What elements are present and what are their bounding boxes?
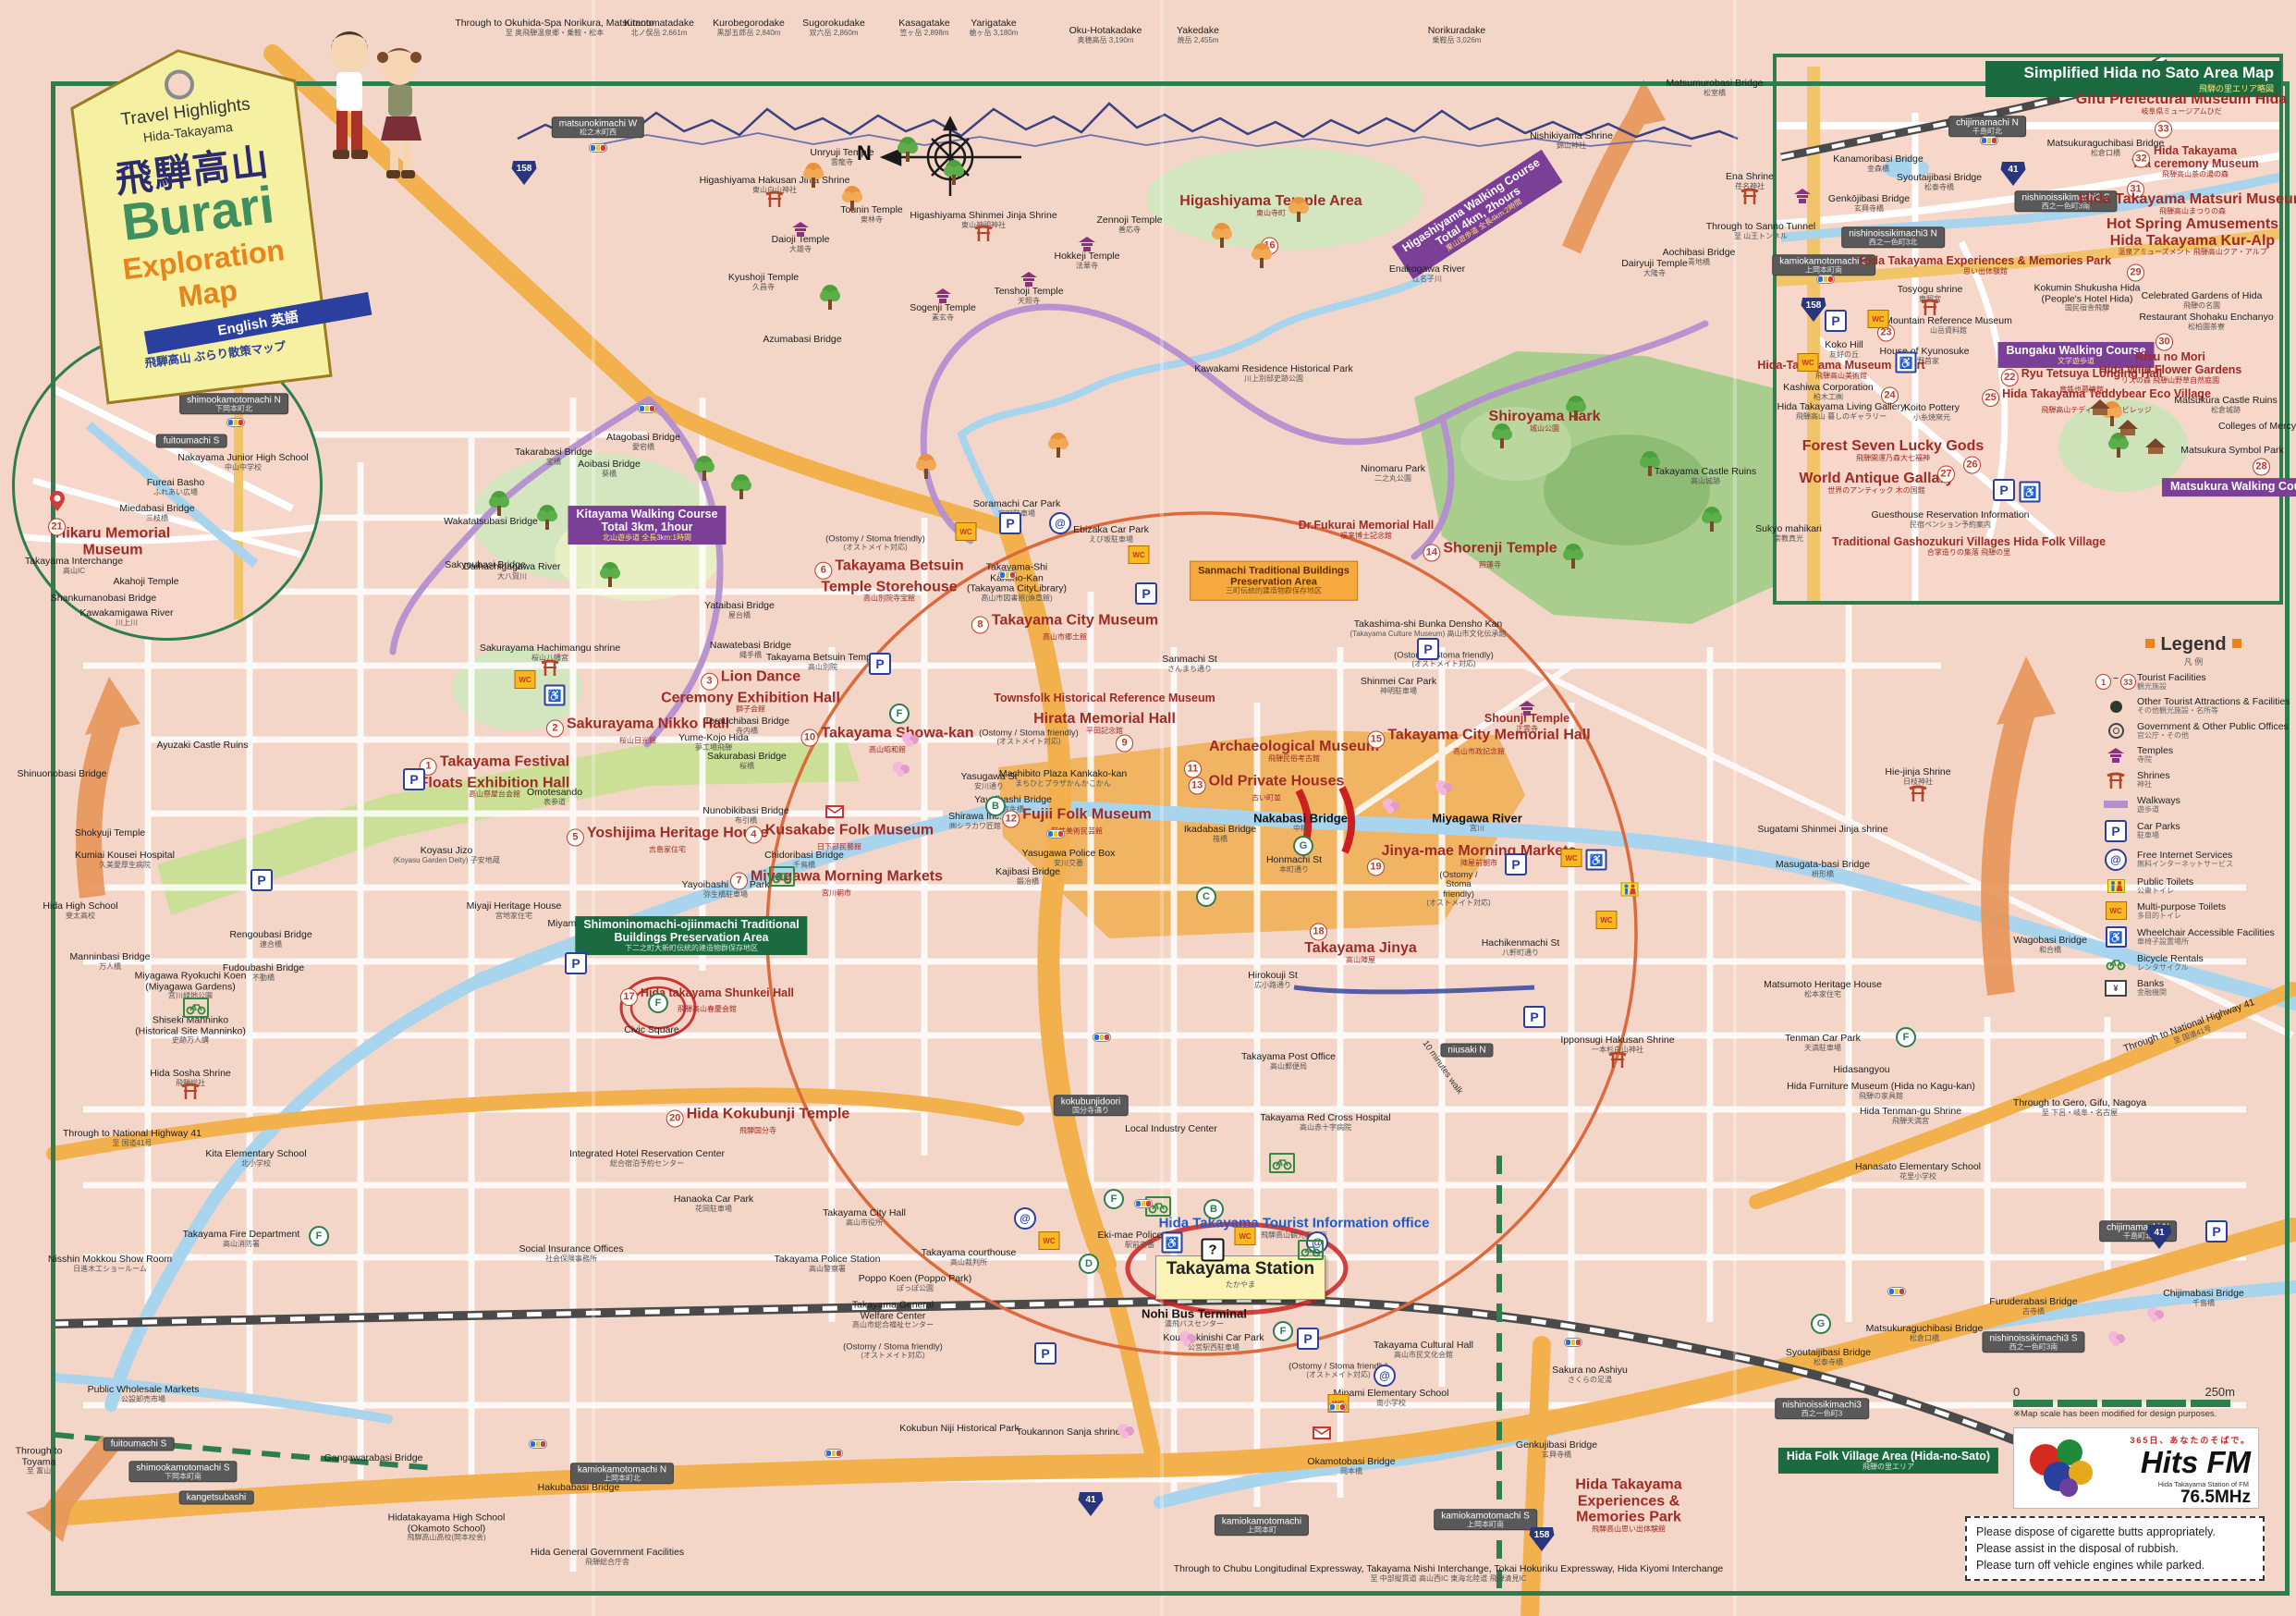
facility-number-marker: 30 xyxy=(2156,334,2176,351)
cherry-blossom-icon xyxy=(1434,778,1454,797)
map-label: Risu no MoriHida Wild Flower Gardensリスの森… xyxy=(2099,351,2242,385)
map-label: Hida General Government Facilities飛騨総合庁舎 xyxy=(531,1548,684,1566)
map-label: Hida Takayama Tourist Information office… xyxy=(1159,1217,1430,1240)
map-label: Takayama Post Office高山郵便局 xyxy=(1241,1052,1336,1071)
map-label: kokubunjidoori国分寺通り xyxy=(1055,1096,1128,1115)
map-label: Kurobegorodake黒部五郎岳 2,840m xyxy=(713,18,785,37)
information-icon: ? xyxy=(1202,1239,1225,1262)
autumn-tree-icon xyxy=(801,162,825,190)
map-label: Hida Tenman-gu Shrine飛騨天満宮 xyxy=(1860,1107,1961,1125)
facility-number: 4 xyxy=(745,826,763,843)
map-label: Shiseki Manninko(Historical Site Mannink… xyxy=(135,1015,246,1044)
map-label: Kokumin Shukusha Hida(People's Hotel Hid… xyxy=(2034,283,2141,312)
map-label: Yataibasi Bridge屋台橋 xyxy=(704,601,775,619)
map-label: Through to Gero, Gifu, Nagoya至 下呂・岐阜・名古屋 xyxy=(2013,1098,2146,1117)
map-label: Hakubabasi Bridge xyxy=(538,1483,620,1494)
traffic-signal-icon xyxy=(589,143,607,153)
map-label: Yakedake焼岳 2,455m xyxy=(1177,26,1219,44)
map-label: Sugatami Shinmei Jinja shrine xyxy=(1757,825,1887,836)
multi-toilet-icon: WC xyxy=(515,670,536,689)
facility-number: 19 xyxy=(1367,859,1385,876)
map-label: Townsfolk Historical Reference Museum xyxy=(994,692,1215,705)
bus-stop-letter-icon: F xyxy=(309,1226,329,1246)
gassho-hut-icon xyxy=(2143,436,2168,455)
facility-number: 18 xyxy=(1310,924,1327,941)
parking-icon: P xyxy=(1034,1342,1056,1365)
map-label: Sanmachi Traditional BuildingsPreservati… xyxy=(1190,561,1358,601)
map-label: Genkujibasi Bridge玄興寺橋 xyxy=(1516,1440,1597,1459)
title-tag: Travel Highlights Hida-Takayama 飛騨高山 Bur… xyxy=(65,35,333,404)
wheelchair-icon: ♿ xyxy=(2020,482,2041,503)
facility-number: 33 xyxy=(2155,121,2172,139)
tree-icon xyxy=(942,159,966,187)
map-label: Miyagawa River宮川 xyxy=(1432,813,1522,834)
traffic-signal-icon xyxy=(529,1439,547,1449)
tree-icon xyxy=(1638,450,1662,478)
traffic-signal-icon xyxy=(1046,829,1065,839)
shrine-icon xyxy=(1607,1050,1628,1069)
map-label: Archaeological Museum飛騨民俗考古館 xyxy=(1209,739,1379,763)
facility-number: 27 xyxy=(1937,466,1955,484)
map-label: Kajibasi Bridge鍛冶橋 xyxy=(995,867,1060,886)
facility-number: 26 xyxy=(1963,457,1981,474)
cherry-blossom-icon xyxy=(1178,1329,1198,1348)
map-label: Integrated Hotel Reservation Center総合宿泊予… xyxy=(569,1149,725,1168)
internet-icon: @ xyxy=(1374,1365,1396,1387)
tree-icon xyxy=(598,561,622,589)
facility-number: 7 xyxy=(730,872,748,889)
map-label: Shimoninomachi-ojiinmachi TraditionalBui… xyxy=(575,916,807,955)
facility-number-marker: 27 xyxy=(1937,466,1958,484)
autumn-tree-icon xyxy=(1210,222,1234,250)
traffic-signal-icon xyxy=(1093,1033,1111,1042)
facility-number: 10 xyxy=(800,728,818,746)
parking-icon: P xyxy=(1825,310,1847,332)
facility-number: 3 xyxy=(701,672,718,690)
map-label: Takashima-shi Bunka Densho Kan(Takayama … xyxy=(1350,619,1507,638)
map-label: Wakatatsubasi Bridge xyxy=(444,517,538,528)
parking-icon: P xyxy=(1993,479,2015,501)
map-label: Hida TakayamaExperiences &Memories Park飛… xyxy=(1575,1476,1681,1533)
map-label: Yarigatake槍ヶ岳 3,180m xyxy=(970,18,1019,37)
traffic-signal-icon xyxy=(824,1449,843,1458)
parking-icon: P xyxy=(1523,1006,1545,1028)
tree-icon xyxy=(1561,543,1585,570)
map-label: Sanmachi Stさんまち通り xyxy=(1162,655,1217,673)
map-label: Kanamoribasi Bridge金森橋 xyxy=(1833,154,1923,173)
map-label: Hanaoka Car Park花岡駐車場 xyxy=(674,1194,753,1213)
map-label: Matsukura Symbol Park xyxy=(2180,446,2283,457)
map-label: matsunokimachi W松之木町西 xyxy=(553,117,643,137)
multi-toilet-icon: WC xyxy=(956,522,977,541)
map-label: Shinuonobasi Bridge xyxy=(18,769,107,780)
facility-number: 14 xyxy=(1423,544,1440,561)
tree-icon xyxy=(1700,506,1724,533)
map-label: kamiokamotomachi上岡本町 xyxy=(1215,1515,1308,1535)
map-label: Hikaru MemorialMuseum xyxy=(55,525,170,557)
map-pin-icon xyxy=(49,490,66,512)
map-label: Tenshoji Temple天照寺 xyxy=(994,287,1063,305)
tree-icon xyxy=(1564,395,1588,422)
map-label: Sugorokudake双六岳 2,860m xyxy=(802,18,865,37)
post-office-icon xyxy=(825,805,844,818)
facility-number-marker: 9 xyxy=(1116,735,1136,753)
bicycle-rental-icon xyxy=(183,998,209,1018)
map-label: Oku-Hotakadake奥穂高岳 3,190m xyxy=(1069,26,1142,44)
parking-icon: P xyxy=(1505,853,1527,875)
map-label: 20Hida Kokubunji Temple飛騨国分寺 xyxy=(666,1107,850,1135)
map-label: Masugata-basi Bridge枡形橋 xyxy=(1776,860,1870,878)
cherry-blossom-icon xyxy=(1381,797,1401,815)
map-label: Takayama-ShiKansho-Kan(Takayama CityLibr… xyxy=(967,562,1067,602)
map-label: nishinoissikimachi3西之一色町3 xyxy=(1776,1399,1868,1418)
tree-icon xyxy=(896,136,920,164)
label-layer: Through to Okuhida-Spa Norikura, Matsumo… xyxy=(0,0,2296,1616)
facility-number: 32 xyxy=(2132,151,2150,168)
bus-stop-letter-icon: G xyxy=(1811,1314,1831,1334)
map-label: Nakayama Junior High School中山中学校 xyxy=(177,453,308,471)
bus-stop-letter-icon: F xyxy=(648,993,668,1013)
map-label: Kumiai Kousei Hospital久美愛厚生病院 xyxy=(75,851,175,869)
map-label: Hida Furniture Museum (Hida no Kagu-kan)… xyxy=(1787,1082,1975,1100)
tree-icon xyxy=(729,473,753,501)
map-label: Takayama Castle Ruins高山城跡 xyxy=(1655,467,1756,485)
public-toilet-icon xyxy=(1621,883,1639,897)
map-label: Takayama Cultural Hall高山市民文化会館 xyxy=(1374,1341,1473,1359)
facility-number-marker: 33 xyxy=(2155,121,2175,139)
facility-number: 13 xyxy=(1189,777,1206,794)
map-label: Nishikiyama Shrine錦山神社 xyxy=(1530,131,1613,150)
parking-icon: P xyxy=(999,512,1021,534)
bus-stop-letter-icon: F xyxy=(1896,1027,1916,1047)
map-label: Chijimabasi Bridge千島橋 xyxy=(2163,1289,2244,1307)
bicycle-rental-icon xyxy=(1269,1153,1295,1173)
map-label: Enakogawa River江名子川 xyxy=(1389,264,1465,283)
wheelchair-icon: ♿ xyxy=(1896,352,1917,373)
map-label: Honmachi St本町通り xyxy=(1266,855,1322,874)
parking-icon: P xyxy=(250,869,273,891)
tree-icon xyxy=(692,455,716,483)
map-label: Public Wholesale Markets公設卸売市場 xyxy=(88,1385,200,1403)
map-label: niusaki N xyxy=(1441,1045,1492,1057)
route-shield-icon: 158 xyxy=(1801,298,1826,322)
map-label: Norikuradake乗鞍岳 3,026m xyxy=(1428,26,1485,44)
map-label: Miyaji Heritage House宮地家住宅 xyxy=(467,901,562,920)
map-label: Machibito Plaza Kankako-kanまちひとプラザかんかこかん xyxy=(999,769,1127,788)
map-label: Civic Square xyxy=(624,1025,679,1036)
shrine-icon xyxy=(180,1082,201,1100)
wheelchair-icon: ♿ xyxy=(544,685,566,706)
map-label: Takayama Fire Department高山消防署 xyxy=(183,1230,300,1248)
map-label: Through to National Highway 41至 国道41号 xyxy=(63,1129,202,1147)
temple-icon xyxy=(1078,236,1096,252)
map-label: Hanasato Elementary School花里小学校 xyxy=(1855,1162,1981,1181)
map-label: Toukannon Sanja shrine xyxy=(1017,1427,1121,1438)
map-label: 5Yoshijima Heritage House吉島家住宅 xyxy=(567,826,768,854)
map-label: fuitoumachi S xyxy=(157,435,226,447)
facility-number-marker: 21 xyxy=(48,519,68,536)
map-label: Hie-jinja Shrine日枝神社 xyxy=(1885,767,1950,786)
facility-number-marker: 26 xyxy=(1963,457,1984,474)
map-label: Ebizaka Car Parkえび坂駐車場 xyxy=(1073,525,1149,544)
cherry-blossom-icon xyxy=(891,760,911,778)
parking-icon: P xyxy=(403,768,425,790)
map-label: Manninbasi Bridge万人橋 xyxy=(70,952,151,971)
temple-icon xyxy=(1020,271,1038,288)
map-label: (Ostomy / Stoma friendly)(オストメイト対応) xyxy=(843,1343,943,1361)
map-label: Hida Folk Village Area (Hida-no-Sato)飛騨の… xyxy=(1778,1448,1998,1474)
traffic-signal-icon xyxy=(1328,1402,1347,1412)
cherry-blossom-icon xyxy=(900,730,921,749)
map-label: Shokyuji Temple xyxy=(75,828,145,839)
bus-stop-letter-icon: F xyxy=(1273,1321,1293,1341)
map-label: 12Fujii Folk Museum藤井美術民芸館 xyxy=(1002,807,1152,836)
map-label: (Ostomy / Stoma friendly)(オストメイト対応) xyxy=(1394,652,1494,669)
map-label: Through to Sanno Tunnel至 山王トンネル xyxy=(1706,222,1816,240)
map-label: shimookamotomachi N下岡本町北 xyxy=(180,394,287,413)
route-shield-icon: 158 xyxy=(1530,1527,1555,1551)
bicycle-rental-icon xyxy=(1298,1240,1324,1260)
map-label: Guesthouse Reservation Information民宿ペンショ… xyxy=(1871,510,2029,529)
shrine-icon xyxy=(764,190,785,208)
map-label: 4Kusakabe Folk Museum日下部民藝館 xyxy=(745,823,934,851)
map-label: Social Insurance Offices社会保険事務所 xyxy=(519,1244,623,1263)
map-label: Mountain Reference Museum山岳資料館 xyxy=(1885,316,2012,335)
map-label: Hot Spring AmusementsHida Takayama Kur-A… xyxy=(2107,216,2278,257)
map-label: Takayama courthouse高山裁判所 xyxy=(922,1248,1017,1267)
map-label: Sakura no Ashiyuさくらの足湯 xyxy=(1552,1365,1628,1384)
map-label: kamiokamotomachi S上岡本町南 xyxy=(1435,1510,1536,1529)
map-label: Gifu Prefectural Museum Hida岐阜県ミュージアムひだ xyxy=(2076,92,2288,116)
map-label: Poppo Koen (Poppo Park)ぽっぽ公園 xyxy=(859,1274,972,1292)
map-label: shimookamotomachi S下岡本町南 xyxy=(129,1462,236,1481)
map-label: Yume-Kojo Hida夢工場飛騨 xyxy=(678,733,749,752)
map-label: Higashiyama Walking CourseTotal 4km, 2ho… xyxy=(1392,150,1562,279)
map-label: Koito Pottery小糸焼窯元 xyxy=(1904,403,1960,422)
map-label: Akahoji Temple xyxy=(113,577,178,588)
map-label: 8Takayama City Museum高山市郷土館 xyxy=(971,613,1158,642)
map-label: Ninomaru Park二之丸公園 xyxy=(1361,464,1425,483)
map-label: Hirokouji St広小路通り xyxy=(1248,971,1298,989)
map-label: Hachikenmachi St八軒町通り xyxy=(1482,938,1560,957)
map-label: Takayama Interchange高山IC xyxy=(25,557,123,575)
map-label: 14Shorenji Temple照蓮寺 xyxy=(1423,541,1557,569)
map-label: Sukyo mahikari崇教真光 xyxy=(1755,524,1822,543)
map-label: Gangawarabasi Bridge xyxy=(324,1453,423,1464)
map-label: Through to Chubu Longitudinal Expressway… xyxy=(1174,1564,1724,1583)
map-label: Wagobasi Bridge和合橋 xyxy=(2013,936,2087,954)
map-label: Yasugawa St安川通り xyxy=(960,772,1017,790)
bus-stop-letter-icon: D xyxy=(1079,1254,1099,1274)
temple-icon xyxy=(1793,188,1812,204)
map-label: Koyasu Jizo(Koyasu Garden Deity) 子安地蔵 xyxy=(393,846,500,864)
multi-toilet-icon: WC xyxy=(1039,1231,1060,1250)
map-label: (Ostomy / Stoma friendly)(オストメイト対応) xyxy=(979,729,1079,747)
internet-icon: @ xyxy=(1014,1207,1036,1230)
map-label: Colleges of Mercy xyxy=(2218,422,2296,433)
map-label: kamiokamotomachi N上岡本町北 xyxy=(571,1463,673,1483)
map-label: Takayama Jinya高山陣屋 xyxy=(1304,940,1417,964)
facility-number: 5 xyxy=(567,828,584,846)
bus-stop-letter-icon: G xyxy=(1293,836,1313,856)
map-label: Takayama Police Station高山警察署 xyxy=(775,1255,881,1273)
map-label: Hidatakayama High School(Okamoto School)… xyxy=(388,1512,506,1541)
map-label: Aoibasi Bridge葵橋 xyxy=(578,459,641,478)
map-label: Shinmei Car Park神明駐車場 xyxy=(1361,677,1436,695)
parking-icon: P xyxy=(869,653,891,675)
facility-number: 6 xyxy=(814,561,832,579)
map-label: Nisshin Mokkou Show Room日進木工ショールーム xyxy=(48,1255,172,1273)
multi-toilet-icon: WC xyxy=(1798,353,1819,372)
map-label: Dairyuji Temple大隆寺 xyxy=(1621,259,1688,277)
map-label: Kokubun Niji Historical Park xyxy=(899,1424,1020,1435)
traffic-signal-icon xyxy=(1887,1287,1906,1296)
map-label: Furuderabasi Bridge古寺橋 xyxy=(1989,1297,2077,1316)
autumn-tree-icon xyxy=(840,185,864,213)
bus-stop-letter-icon: B xyxy=(985,796,1006,816)
internet-icon: @ xyxy=(1049,512,1071,534)
route-shield-icon: 158 xyxy=(512,161,537,185)
map-label: Kawakami Residence Historical Park川上別邸史跡… xyxy=(1194,364,1353,383)
route-shield-icon: 41 xyxy=(2001,162,2026,186)
map-label: Takayama Red Cross Hospital高山赤十字病院 xyxy=(1260,1113,1390,1132)
map-label: Ayuzaki Castle Ruins xyxy=(156,741,248,752)
map-label: Minami Elementary School南小学校 xyxy=(1334,1389,1449,1407)
facility-number-marker: 18 xyxy=(1310,924,1330,941)
multi-toilet-icon: WC xyxy=(1596,911,1618,929)
map-label: Omotesando表参道 xyxy=(527,788,582,806)
tree-icon xyxy=(1490,422,1514,450)
map-label: Sakurabasi Bridge桜橋 xyxy=(707,752,787,770)
map-label: Takayama City Hall高山市役所 xyxy=(823,1208,906,1227)
map-label: Hidasangyou xyxy=(1833,1065,1889,1076)
wheelchair-icon: ♿ xyxy=(1162,1232,1183,1254)
map-label: nishinoissikimachi3 N西之一色町3北 xyxy=(1842,227,1944,247)
map-label: Azumabasi Bridge xyxy=(763,335,841,346)
map-label: Matsukuraguchibasi Bridge松倉口橋 xyxy=(1866,1324,1984,1342)
shrine-icon xyxy=(540,658,560,677)
map-label: nishinoissikimachi3 S西之一色町3南 xyxy=(1983,1332,2083,1352)
cherry-blossom-icon xyxy=(1116,1422,1136,1440)
map-label: Matsukura Walking Course xyxy=(2162,478,2296,496)
map-label: Syoutaijibasi Bridge松泰寺橋 xyxy=(1786,1348,1871,1366)
facility-number: 29 xyxy=(2127,264,2144,282)
facility-number: 2 xyxy=(546,719,564,737)
route-shield-icon: 41 xyxy=(1079,1492,1104,1516)
facility-number: 17 xyxy=(620,988,638,1006)
map-label: Matsumurobasi Bridge松室橋 xyxy=(1666,79,1763,97)
map-label: Dr.Fukurai Memorial Hall福来博士記念館 xyxy=(1299,520,1435,540)
cherry-blossom-icon xyxy=(2107,1329,2127,1348)
tree-icon xyxy=(535,504,559,532)
traffic-signal-icon xyxy=(1134,1199,1153,1208)
map-label: Sogenji Temple素玄寺 xyxy=(910,303,976,322)
map-label: Yasugawa Police Box安川交番 xyxy=(1022,849,1116,867)
map-label: Genkōjibasi Bridge玄興寺橋 xyxy=(1828,194,1910,213)
map-label: kangetsubashi xyxy=(180,1492,253,1504)
map-label: Hida Takayama Living Gallery飛騨高山 暮しのギャラリ… xyxy=(1777,402,1906,421)
map-label: Kita Elementary School北小学校 xyxy=(205,1149,306,1168)
multi-toilet-icon: WC xyxy=(1561,849,1582,867)
map-label: Restaurant Shohaku Enchanyo松柏園茶寮 xyxy=(2139,312,2273,331)
traffic-signal-icon xyxy=(998,570,1017,580)
bus-stop-letter-icon: F xyxy=(889,704,910,724)
parking-icon: P xyxy=(565,952,587,974)
children-illustration xyxy=(305,28,444,226)
map-label: Through to National Highway 41至 国道41号 xyxy=(2122,998,2259,1062)
map-label: Jinya-mae Morning Markets陣屋前朝市 xyxy=(1382,843,1577,867)
map-label: 10Takayama Showa-kan高山昭和館 xyxy=(800,726,973,754)
map-label: Sakyoubasi Bridge xyxy=(445,560,526,571)
gassho-hut-icon xyxy=(2116,418,2140,436)
map-label: Traditional Gashozukuri Villages Hida Fo… xyxy=(1832,536,2106,557)
autumn-tree-icon xyxy=(1250,242,1274,270)
map-label: Local Industry Center xyxy=(1125,1124,1217,1135)
post-office-icon xyxy=(1313,1426,1331,1439)
map-label: Nawatebasi Bridge縄手橋 xyxy=(710,641,791,659)
route-shield-icon: 41 xyxy=(2147,1225,2172,1249)
traffic-signal-icon xyxy=(1564,1338,1582,1347)
facility-number: 22 xyxy=(2001,369,2019,386)
map-label: 3Lion DanceCeremony Exhibition Hall獅子会館 xyxy=(661,669,840,715)
bus-stop-letter-icon: C xyxy=(1196,887,1216,907)
map-label: Hida Takayama Matsuri Museum飛騨高山まつりの森 xyxy=(2079,191,2296,215)
map-label: fuitoumachi S xyxy=(104,1438,174,1451)
tree-icon xyxy=(818,284,842,312)
map-label: Zennoji Temple善応寺 xyxy=(1096,215,1162,234)
map-label: Matsukura Castle Ruins松倉城跡 xyxy=(2174,396,2277,414)
map-label: (Ostomy /Stomafriendly)(オストメイト対応) xyxy=(1426,871,1490,908)
map-label: Kitanomatadake北ノ俣岳 2,661m xyxy=(624,18,694,37)
shrine-icon xyxy=(1920,298,1940,316)
map-label: Takayama GeneralWelfare Center高山市総合福祉センタ… xyxy=(852,1300,934,1328)
bus-stop-letter-icon: B xyxy=(1203,1199,1224,1219)
facility-number-marker: 29 xyxy=(2127,264,2147,282)
facility-number: 21 xyxy=(48,519,66,536)
parking-icon: P xyxy=(1135,582,1157,605)
facility-number: 20 xyxy=(666,1109,684,1127)
map-label: Hida High School斐太高校 xyxy=(43,901,117,920)
autumn-tree-icon xyxy=(914,453,938,481)
map-label: 17Hida takayama Shunkei Hall飛騨高山春慶会館 xyxy=(620,987,794,1013)
map-label: (Ostomy / Stoma friendly)(オストメイト対応) xyxy=(825,535,925,553)
map-label: 13Old Private Houses古い町並 xyxy=(1189,774,1345,802)
map-label: Matsumoto Heritage House松本家住宅 xyxy=(1764,980,1882,998)
gassho-hut-icon xyxy=(2088,398,2112,416)
map-label: Miedabasi Bridge三枝橋 xyxy=(119,504,194,522)
cherry-blossom-icon xyxy=(2145,1305,2166,1324)
map-label: Kawakamigawa River川上川 xyxy=(80,608,174,627)
map-label: Miyagawa Ryokuchi Koen(Miyagawa Gardens)… xyxy=(135,971,247,999)
multi-toilet-icon: WC xyxy=(1129,545,1150,564)
traffic-signal-icon xyxy=(1980,136,1998,145)
tree-icon xyxy=(487,490,511,518)
map-label: Hida Takayama Experiences & Memories Par… xyxy=(1860,255,2111,275)
map-label: Rengoubasi Bridge連合橋 xyxy=(229,930,311,949)
traffic-signal-icon xyxy=(226,418,245,427)
facility-number: 28 xyxy=(2253,459,2270,476)
shrine-icon xyxy=(1908,784,1928,802)
temple-icon xyxy=(1518,700,1536,716)
map-label: Tenman Car Park天満駐車場 xyxy=(1785,1034,1861,1052)
facility-number-marker: 19 xyxy=(1367,859,1387,876)
traffic-signal-icon xyxy=(638,404,656,413)
map-label: Kitayama Walking CourseTotal 3km, 1hour北… xyxy=(568,506,726,545)
parking-icon: P xyxy=(1297,1328,1319,1350)
map-sheet: Simplified Hida no Sato Area Map 飛騨の里エリア… xyxy=(0,0,2296,1616)
facility-number: 30 xyxy=(2156,334,2173,351)
map-label: World Antique Gallary世界のアンティック 木の国館 xyxy=(1799,471,1953,495)
